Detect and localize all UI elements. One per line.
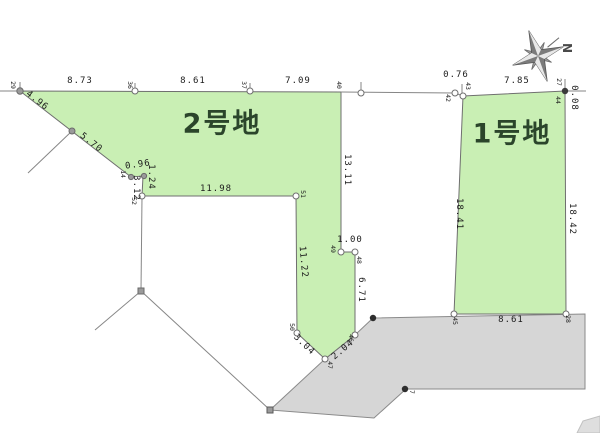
point-road-corner — [370, 315, 376, 321]
point-48 — [352, 249, 358, 255]
compass-rose — [503, 21, 572, 90]
point-52 — [139, 193, 145, 199]
point-51 — [293, 193, 299, 199]
compass-north-pointer — [546, 38, 561, 47]
point-46 — [352, 332, 358, 338]
point-cluster — [141, 173, 146, 178]
southwest-extension-line — [28, 131, 72, 173]
point-road-mid — [358, 90, 364, 96]
point-49 — [338, 249, 344, 255]
point-36 — [132, 88, 138, 94]
survey-drawing — [0, 0, 600, 433]
point-road-bend — [267, 407, 273, 413]
point-43 — [460, 93, 466, 99]
point-29 — [17, 88, 23, 94]
point-mid-diagonal — [69, 128, 75, 134]
plot-1-area — [454, 91, 566, 314]
point-37 — [247, 88, 253, 94]
neighbour-line-diagonal — [141, 291, 270, 410]
point-7 — [402, 386, 408, 392]
point-42 — [452, 90, 458, 96]
point-47 — [322, 356, 328, 362]
land-survey-map: 2号地 1号地 N 8.738.617.090.767.854.965.700.… — [0, 0, 600, 433]
point-14 — [128, 174, 133, 179]
point-27-44 — [562, 88, 568, 94]
point-28 — [563, 311, 569, 317]
point-junction — [138, 288, 144, 294]
point-45 — [451, 311, 457, 317]
road-corner-patch — [577, 416, 600, 433]
point-50 — [294, 330, 300, 336]
neighbour-line-left — [95, 291, 141, 330]
neighbour-line-vertical — [141, 197, 142, 291]
compass-main-star — [503, 21, 572, 90]
